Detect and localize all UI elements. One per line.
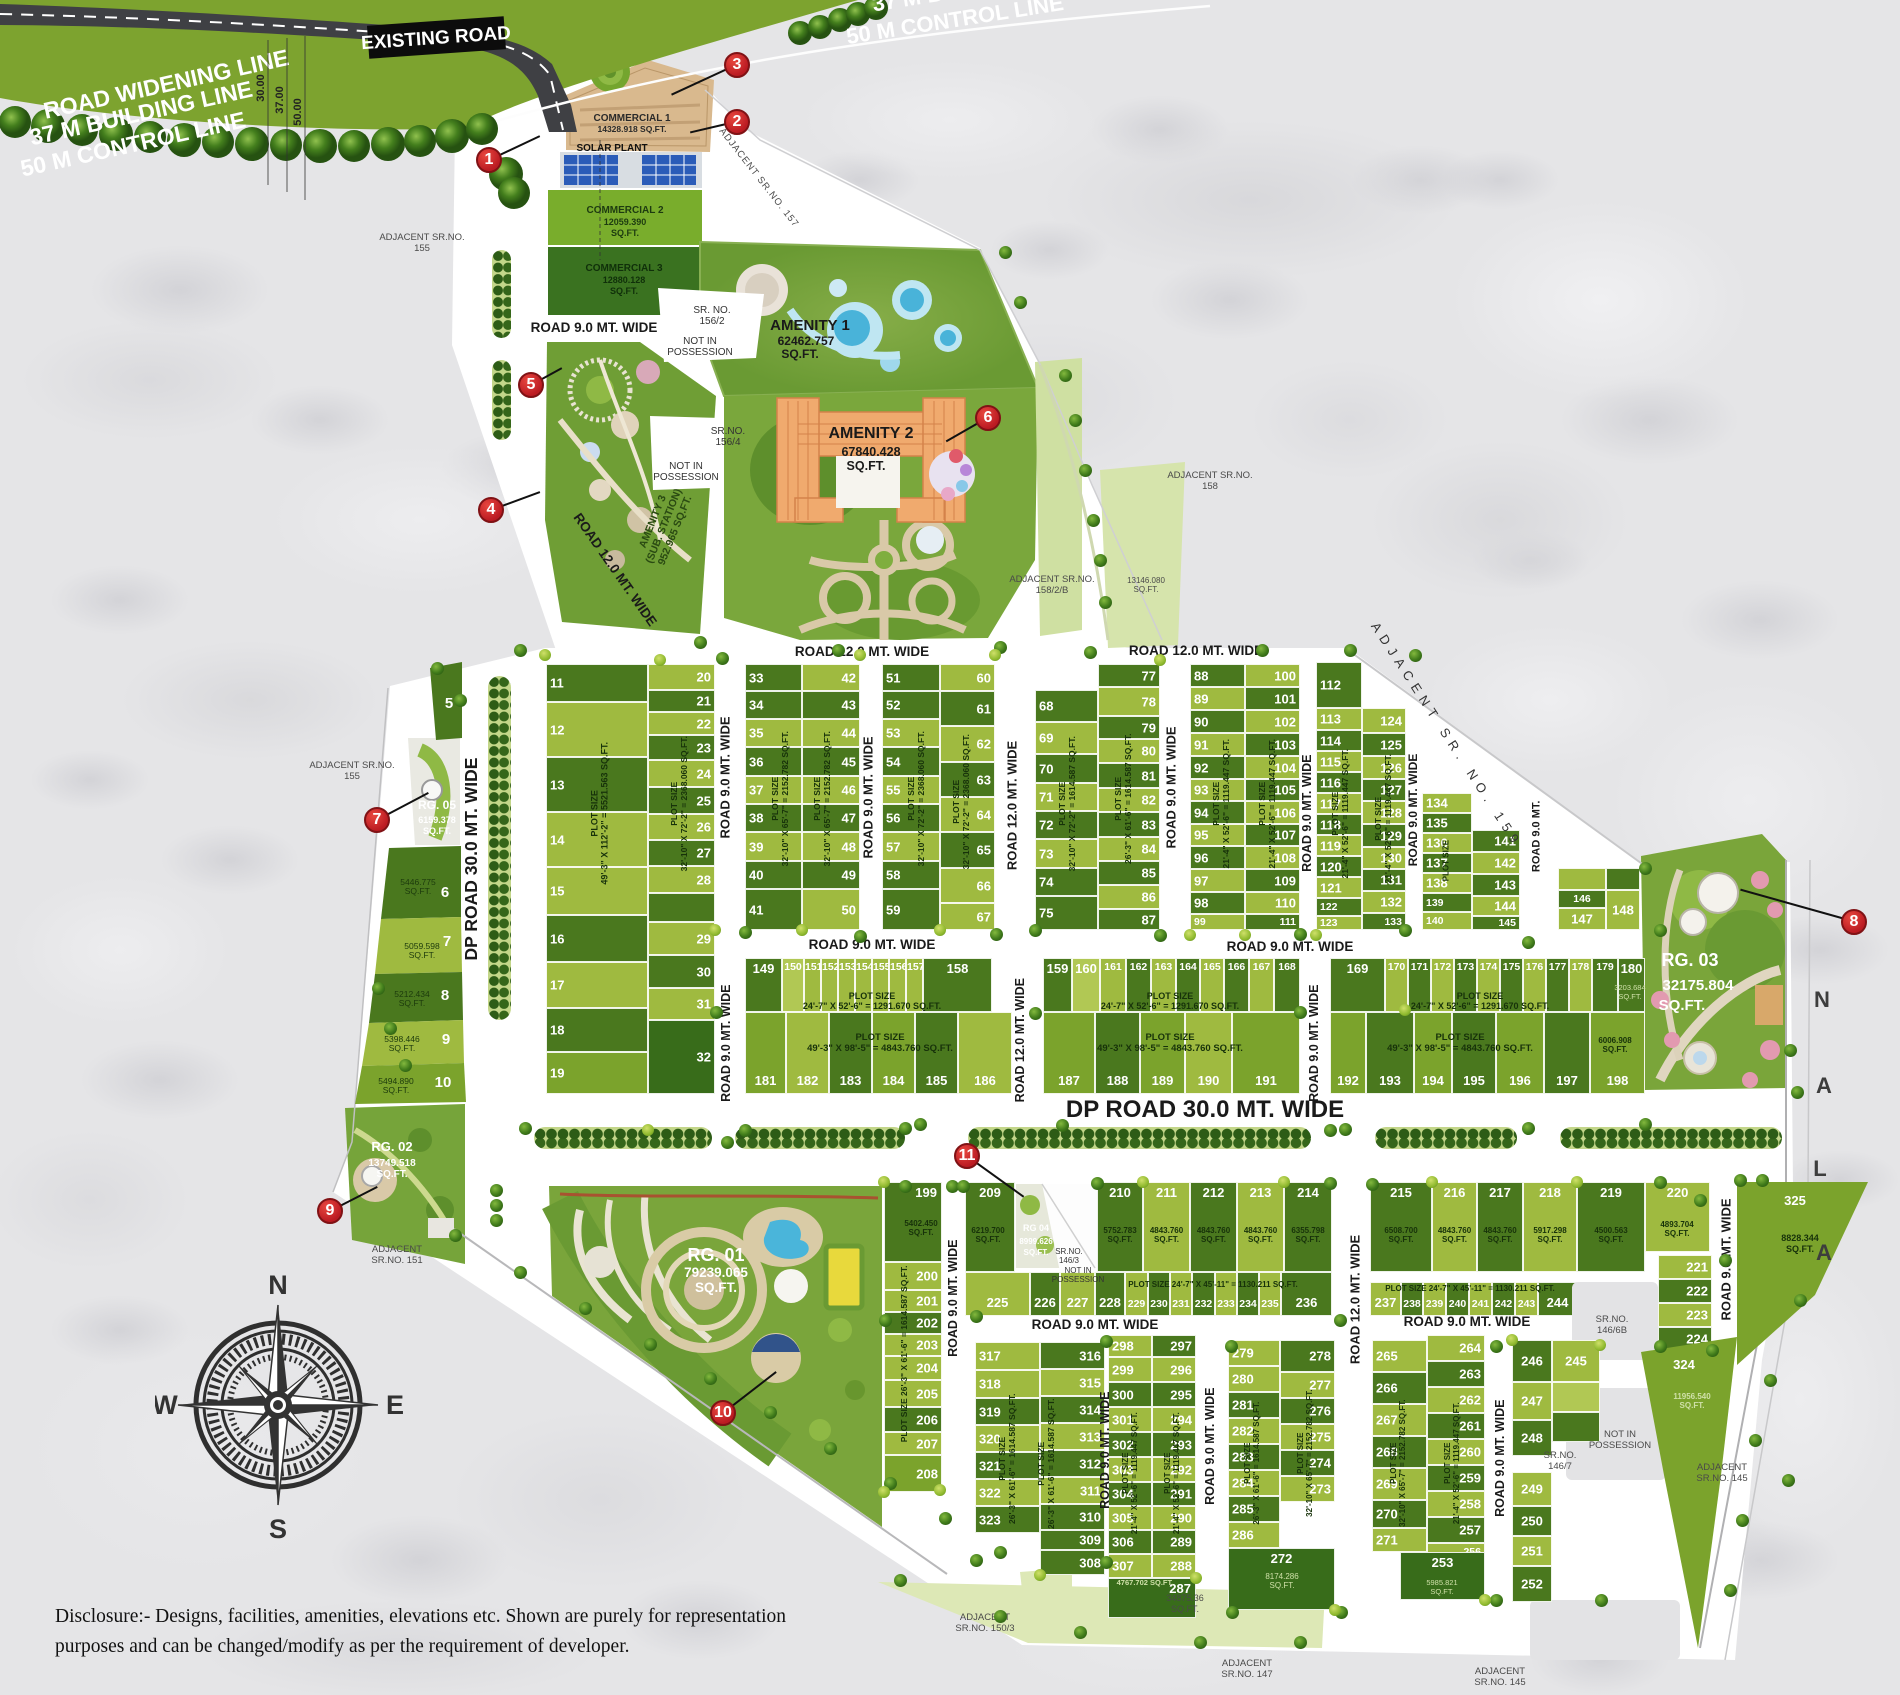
svg-text:30.00: 30.00 bbox=[255, 74, 267, 102]
svg-text:N: N bbox=[268, 1270, 288, 1300]
svg-text:S: S bbox=[269, 1514, 287, 1544]
svg-text:W: W bbox=[155, 1390, 178, 1420]
svg-text:E: E bbox=[386, 1390, 404, 1420]
svg-text:37.00: 37.00 bbox=[274, 86, 286, 114]
svg-text:50.00: 50.00 bbox=[292, 98, 304, 126]
